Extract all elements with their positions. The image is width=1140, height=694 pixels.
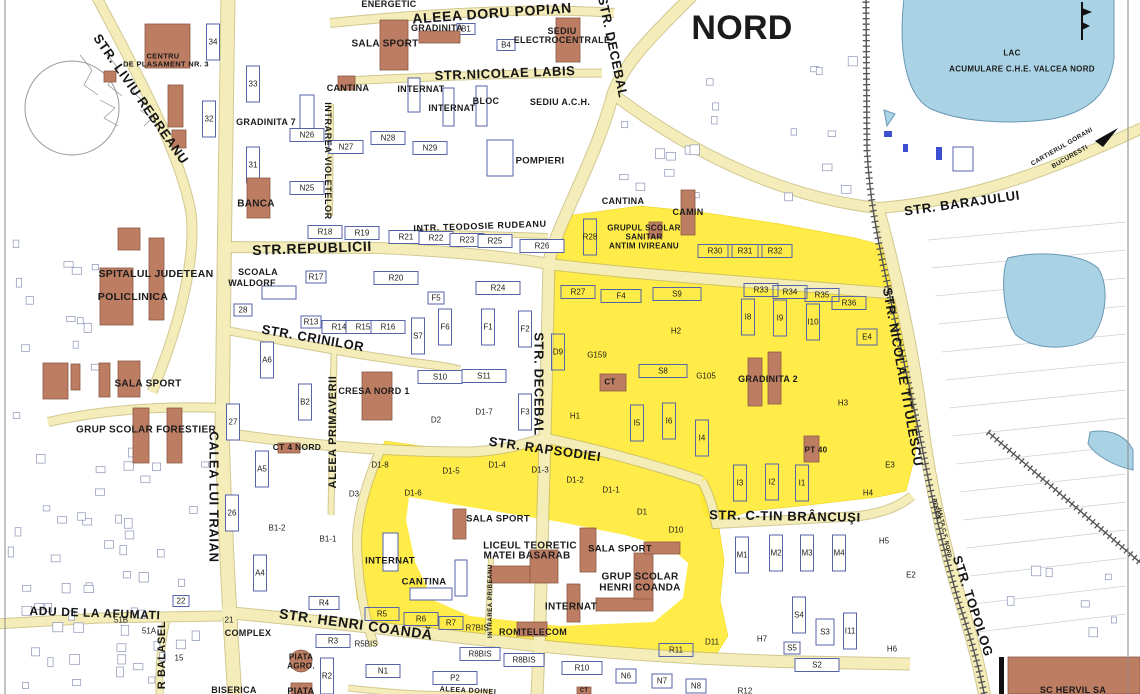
block-label: F5: [431, 294, 441, 303]
block-label: R17: [309, 273, 324, 282]
block-label: N27: [339, 143, 354, 152]
block-label: 27: [229, 418, 238, 427]
scatter-house: [619, 174, 628, 179]
block-label: D1-2: [566, 476, 584, 485]
block-label: F3: [520, 408, 530, 417]
place-label: SEDIU A.C.H.: [530, 97, 590, 107]
block-label: 32: [205, 115, 214, 124]
block-label: D1-6: [404, 489, 422, 498]
block-label: A5: [257, 465, 267, 474]
scatter-house: [53, 623, 63, 632]
block-label: R35: [815, 291, 830, 300]
brown-building: [168, 85, 183, 127]
place-label: PT 40: [805, 446, 828, 455]
block-label: R32: [768, 247, 783, 256]
block-label: I4: [699, 434, 706, 443]
scatter-house: [822, 164, 832, 171]
scatter-house: [124, 462, 133, 470]
place-label: GRUPUL SCOLAR: [607, 224, 681, 233]
scatter-house: [84, 323, 91, 332]
block-label: I2: [769, 478, 776, 487]
block-label: R26: [535, 242, 550, 251]
place-label: INTERNAT: [428, 103, 475, 113]
block-label: F6: [440, 323, 450, 332]
scatter-house: [23, 682, 29, 688]
place-label: CT: [580, 688, 589, 694]
white-building: [455, 560, 467, 596]
block-label: N25: [300, 184, 315, 193]
scatter-house: [118, 655, 126, 664]
white-building: [410, 588, 452, 600]
block-label: N6: [621, 672, 632, 681]
street-label: STR. C-TIN BRÂNCUŞI: [709, 507, 861, 525]
place-label: ACUMULARE C.H.E. VALCEA NORD: [949, 65, 1095, 74]
place-label: POLICLINICA: [98, 291, 168, 303]
block-label: A4: [255, 569, 265, 578]
block-label: R36: [842, 299, 857, 308]
scatter-house: [192, 631, 200, 641]
scatter-house: [70, 655, 80, 665]
scatter-house: [23, 585, 31, 591]
place-label: LAC: [1003, 49, 1020, 58]
block-label: N29: [423, 144, 438, 153]
block-label: D1-4: [488, 461, 506, 470]
scatter-house: [32, 648, 40, 656]
scatter-house: [622, 121, 628, 127]
place-label: CANTINA: [327, 83, 370, 93]
block-label: D1-1: [602, 486, 620, 495]
block-label: H1: [570, 412, 581, 421]
place-label: GRUP SCOLAR: [601, 572, 678, 583]
brown-building: [490, 566, 530, 583]
block-label: R30: [708, 247, 723, 256]
scatter-house: [1089, 628, 1098, 637]
block-label: R6: [416, 615, 427, 624]
scatter-house: [43, 506, 50, 511]
place-label: INTERNAT: [397, 84, 444, 94]
block-label: H3: [838, 399, 849, 408]
block-label: D1-5: [442, 467, 460, 476]
block-label: R8BIS: [512, 656, 535, 665]
block-label: S4: [794, 611, 804, 620]
block-label: B2: [300, 398, 310, 407]
block-label: R14: [332, 323, 347, 332]
block-label: N8: [691, 682, 702, 691]
scatter-house: [121, 625, 129, 635]
block-label: R23: [460, 236, 475, 245]
block-label: S5: [787, 644, 797, 653]
scatter-house: [48, 658, 53, 667]
block-label: R13: [304, 318, 319, 327]
place-label: AGRO.: [287, 662, 315, 671]
blue-building: [936, 147, 942, 160]
block-label: H7: [757, 635, 768, 644]
block-label: 31: [249, 161, 258, 170]
block-label: I3: [737, 479, 744, 488]
block-label: 26: [228, 509, 237, 518]
place-label: PIATA: [287, 686, 314, 694]
block-label: N1: [378, 667, 389, 676]
white-building: [953, 147, 973, 171]
block-label: 15: [175, 654, 184, 663]
scatter-house: [13, 413, 20, 419]
block-label: I10: [807, 318, 819, 327]
scatter-house: [58, 517, 67, 523]
block-label: B4: [501, 41, 511, 50]
block-label: N28: [381, 134, 396, 143]
place-label: SALA SPORT: [114, 379, 181, 390]
block-label: F1: [483, 323, 493, 332]
place-label: CANTINA: [402, 577, 447, 588]
block-label: S7: [413, 332, 423, 341]
block-label: S11: [477, 372, 491, 381]
brown-building: [118, 228, 140, 250]
place-label: DE PLASAMENT NR. 3: [123, 60, 209, 69]
brown-building: [133, 408, 149, 463]
scatter-house: [791, 129, 797, 135]
scatter-house: [141, 476, 150, 483]
brown-building: [71, 364, 80, 390]
block-label: R15: [356, 323, 371, 332]
scatter-house: [666, 152, 675, 160]
place-label: CT 4 NORD: [273, 442, 322, 452]
place-label: SCOALA: [238, 267, 278, 277]
block-label: M1: [736, 551, 748, 560]
block-label: E4: [862, 333, 872, 342]
block-label: R5: [377, 610, 388, 619]
block-label: R7BIS: [465, 624, 488, 633]
place-label: SC HERVIL SA: [1040, 685, 1106, 694]
place-label: SANITAR: [625, 233, 662, 242]
white-building: [487, 140, 513, 176]
block-label: R20: [389, 274, 404, 283]
block-label: R21: [399, 233, 414, 242]
scatter-house: [665, 170, 674, 177]
block-label: S9: [672, 290, 682, 299]
block-label: N7: [657, 677, 668, 686]
block-label: N26: [300, 131, 315, 140]
scatter-house: [8, 547, 14, 557]
place-label: CANTINA: [602, 196, 645, 206]
scatter-house: [73, 680, 81, 686]
scatter-house: [116, 515, 122, 523]
block-label: R4: [319, 599, 330, 608]
block-label: D10: [669, 526, 684, 535]
scatter-house: [15, 528, 21, 536]
block-label: R7: [446, 619, 457, 628]
place-label: GRUP SCOLAR FORESTIER: [76, 425, 216, 436]
black-bar: [999, 657, 1004, 694]
place-label: INTERNAT: [545, 602, 597, 613]
brown-building: [43, 363, 68, 399]
scatter-house: [707, 79, 714, 86]
place-label: ENERGETIC: [361, 0, 416, 9]
blue-building: [903, 144, 908, 152]
scatter-house: [153, 463, 161, 471]
block-label: 22: [177, 597, 186, 606]
block-label: M2: [770, 549, 782, 558]
place-label: BANCA: [237, 199, 275, 210]
block-label: R3: [328, 637, 339, 646]
block-label: E3: [885, 461, 895, 470]
white-building: [476, 86, 487, 126]
scatter-house: [176, 640, 185, 649]
street-label: STR. DECEBAL: [532, 332, 547, 435]
block-label: 28: [239, 306, 248, 315]
place-label: INTERNAT: [365, 556, 415, 567]
block-label: R10: [575, 664, 590, 673]
scatter-house: [72, 268, 82, 275]
block-label: D2: [431, 416, 442, 425]
block-label: R33: [754, 286, 769, 295]
scatter-house: [16, 278, 21, 287]
scatter-house: [37, 454, 46, 463]
block-label: 33: [249, 80, 258, 89]
block-label: H6: [887, 645, 898, 654]
block-label: S2: [812, 661, 822, 670]
place-label: CT: [604, 378, 615, 387]
block-label: 34: [209, 38, 218, 47]
scatter-house: [713, 103, 719, 110]
scatter-house: [157, 550, 164, 558]
scatter-house: [96, 489, 105, 495]
block-label: D3: [349, 490, 360, 499]
place-label: CAMIN: [673, 207, 704, 217]
block-label: I6: [666, 417, 673, 426]
scatter-house: [77, 513, 85, 520]
place-label: POMPIERI: [516, 156, 565, 167]
place-label: ROMTELECOM: [499, 627, 567, 637]
scatter-house: [124, 518, 132, 528]
block-label: G105: [696, 372, 716, 381]
street-label: CALEA LUI TRAIAN: [207, 431, 222, 562]
scatter-house: [64, 262, 73, 268]
block-label: I11: [845, 627, 856, 636]
scatter-house: [785, 193, 793, 201]
block-label: H2: [671, 327, 682, 336]
scatter-house: [84, 585, 93, 592]
brown-building: [167, 408, 182, 463]
place-label: ELECTROCENTRALE: [514, 35, 611, 45]
place-label: GRADINITA 7: [236, 117, 296, 127]
block-label: B1-2: [269, 524, 286, 533]
block-label: M3: [801, 549, 813, 558]
scatter-house: [51, 555, 60, 562]
block-label: P2: [450, 674, 460, 683]
scatter-house: [690, 145, 699, 155]
block-label: R34: [783, 288, 798, 297]
scatter-house: [120, 546, 127, 555]
block-label: F4: [616, 292, 626, 301]
block-label: I8: [745, 313, 752, 322]
scatter-house: [179, 579, 185, 586]
city-map-canvas: 34333231N26N27N28N29N25B1B4R18R19R21R22R…: [0, 0, 1140, 694]
brown-building: [596, 598, 653, 611]
scatter-house: [117, 644, 126, 652]
scatter-house: [22, 345, 30, 352]
scatter-house: [73, 341, 78, 348]
scatter-house: [636, 183, 645, 191]
block-label: R22: [429, 234, 444, 243]
block-label: R31: [738, 247, 753, 256]
place-label: SALA SPORT: [588, 544, 652, 555]
brown-building: [362, 372, 392, 420]
block-label: R16: [381, 323, 396, 332]
block-label: G159: [587, 351, 607, 360]
block-label: R19: [355, 229, 370, 238]
place-label: NORD: [691, 9, 792, 47]
block-label: B1-1: [320, 535, 337, 544]
block-label: R18: [318, 228, 333, 237]
block-label: A6: [262, 356, 272, 365]
block-label: D1: [637, 508, 648, 517]
place-label: SALA SPORT: [351, 39, 418, 50]
block-label: I1: [799, 479, 806, 488]
brown-building: [453, 509, 466, 539]
scatter-house: [1111, 617, 1116, 623]
street-label: ALEEA PRIMAVERII: [327, 376, 339, 489]
block-label: H4: [863, 489, 874, 498]
place-label: CRESA NORD 1: [338, 386, 409, 396]
block-label: R5BIS: [354, 640, 377, 649]
scatter-house: [1081, 601, 1089, 607]
scatter-house: [841, 186, 851, 194]
brown-building: [99, 363, 110, 397]
scatter-house: [828, 131, 836, 137]
place-label: SALA SPORT: [466, 514, 530, 525]
block-label: S3: [820, 628, 830, 637]
block-label: R27: [571, 288, 586, 297]
scatter-house: [123, 571, 130, 578]
block-label: R11: [669, 646, 684, 655]
scatter-house: [77, 318, 83, 324]
block-label: 21: [225, 616, 234, 625]
scatter-house: [133, 664, 143, 670]
block-label: M4: [833, 549, 845, 558]
block-label: R25: [488, 237, 503, 246]
place-label: ANTIM IVIREANU: [609, 242, 679, 251]
scatter-house: [848, 57, 857, 66]
block-label: D1-8: [371, 461, 389, 470]
block-label: R12: [738, 687, 753, 694]
street-label: R BALASEL: [156, 621, 168, 689]
scatter-house: [149, 677, 155, 683]
block-label: R2: [322, 672, 333, 681]
block-label: S8: [658, 367, 668, 376]
scatter-house: [105, 541, 114, 549]
scatter-house: [1007, 597, 1014, 606]
block-label: D1-3: [531, 466, 549, 475]
block-label: D9: [553, 348, 564, 357]
block-label: D1-7: [475, 408, 493, 417]
scatter-house: [1031, 566, 1040, 576]
valcea-nord-map: 34333231N26N27N28N29N25B1B4R18R19R21R22R…: [0, 0, 1140, 694]
block-label: E2: [906, 571, 916, 580]
place-label: HENRI COANDA: [599, 583, 680, 594]
scatter-house: [1105, 574, 1111, 580]
blue-building: [884, 131, 892, 137]
scatter-house: [26, 297, 33, 305]
block-label: I5: [634, 419, 641, 428]
block-label: 51A: [142, 627, 157, 636]
scatter-house: [13, 240, 19, 248]
scatter-house: [139, 572, 148, 582]
scatter-house: [1046, 568, 1052, 576]
scatter-house: [656, 149, 665, 159]
place-label: PIATA: [289, 653, 313, 662]
street-label: INTRAREA VIOLETELOR: [323, 102, 333, 220]
scatter-house: [74, 623, 84, 632]
scatter-house: [62, 583, 70, 593]
block-label: I9: [777, 314, 784, 323]
scatter-house: [116, 667, 123, 677]
block-label: H5: [879, 537, 890, 546]
street-label: INTRAREA PRIBEANU: [488, 564, 494, 638]
block-label: S10: [433, 373, 448, 382]
block-label: R28: [583, 233, 598, 242]
scatter-house: [67, 317, 75, 322]
block-label: D11: [705, 638, 720, 647]
block-label: R24: [491, 284, 506, 293]
block-label: R8BIS: [468, 650, 491, 659]
scatter-house: [91, 364, 99, 370]
place-label: BISERICA: [211, 685, 257, 694]
scatter-house: [712, 116, 718, 124]
place-label: COMPLEX: [225, 628, 272, 638]
place-label: SPITALUL JUDETEAN: [99, 268, 214, 280]
scatter-house: [190, 506, 197, 513]
pond-east: [1004, 254, 1106, 347]
scatter-house: [125, 531, 134, 539]
place-label: GRADINITA 2: [738, 374, 798, 384]
place-label: MATEI BASARAB: [483, 551, 570, 562]
block-label: F2: [520, 325, 530, 334]
place-label: BLOC: [473, 96, 500, 106]
scatter-house: [816, 67, 822, 74]
place-label: WALDORF: [228, 278, 276, 288]
scatter-house: [96, 467, 105, 473]
